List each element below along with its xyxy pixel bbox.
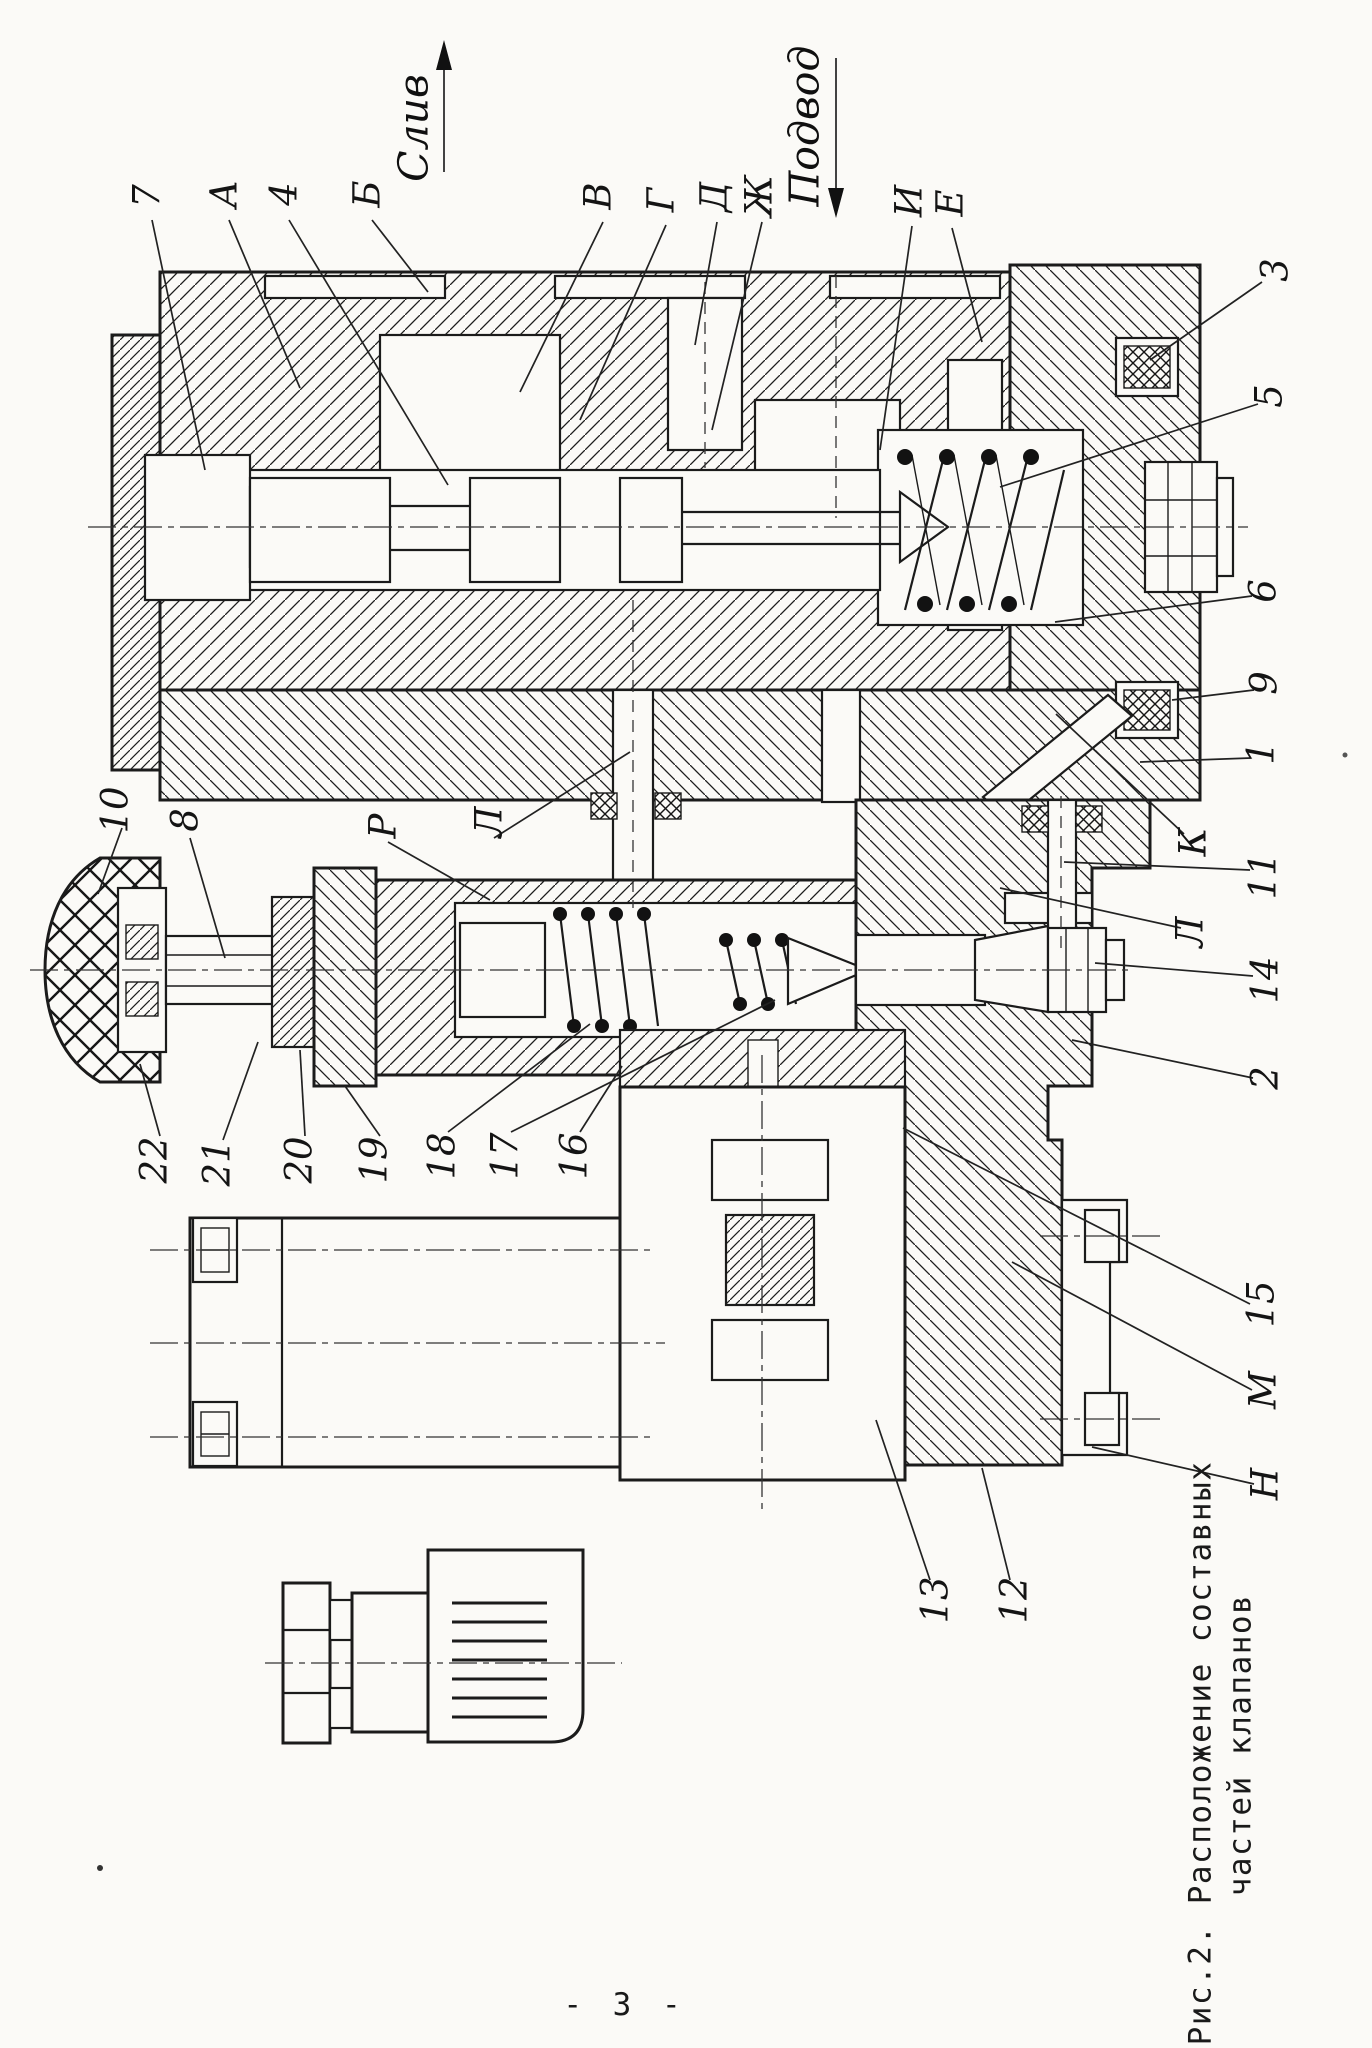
callout-8: 8 — [164, 808, 207, 832]
gland-flange — [314, 868, 376, 1086]
callout-d: Д — [693, 181, 736, 214]
callout-9: 9 — [1243, 671, 1286, 695]
handwheel-nut — [126, 982, 158, 1016]
page-number: - 3 - — [563, 1987, 686, 2023]
vertical-channel-center — [822, 690, 860, 802]
figure-caption-line2: частей клапанов — [1223, 1594, 1259, 1896]
callout-l-left: Л — [468, 805, 511, 839]
push-pin — [748, 1040, 778, 1087]
callout-15: 15 — [1240, 1280, 1283, 1327]
callout-11: 11 — [1242, 852, 1285, 899]
scan-artifact — [1343, 753, 1348, 758]
cavity-v — [380, 335, 560, 475]
callout-17: 17 — [484, 1132, 527, 1180]
channel-seal — [1076, 806, 1102, 832]
callout-22: 22 — [133, 1136, 176, 1184]
callout-b: Б — [346, 180, 389, 208]
callout-6: 6 — [1242, 579, 1285, 603]
callout-1: 1 — [1240, 741, 1283, 765]
callout-20: 20 — [278, 1136, 321, 1184]
solenoid-section — [190, 1030, 905, 1480]
armature-detail — [712, 1320, 828, 1380]
flow-supply-label: Подвод — [781, 46, 829, 208]
solenoid-terminal — [193, 1402, 237, 1466]
callout-19: 19 — [353, 1136, 396, 1183]
arrow-up-icon — [436, 40, 452, 70]
cable-connector — [283, 1550, 583, 1743]
callout-a: А — [203, 180, 246, 211]
callout-21: 21 — [196, 1139, 239, 1187]
callout-7: 7 — [126, 184, 169, 208]
connector-neck — [330, 1688, 352, 1728]
callout-2: 2 — [1244, 1066, 1287, 1091]
lock-nut — [272, 897, 314, 1047]
callout-3: 3 — [1254, 258, 1297, 282]
handwheel-nut — [126, 925, 158, 959]
callout-18: 18 — [421, 1132, 464, 1179]
connector-shell — [428, 1550, 583, 1742]
figure-caption-line1: Рис.2. Расположение составных — [1183, 1461, 1219, 2046]
callout-k: К — [1172, 826, 1215, 857]
scan-artifact — [97, 1865, 103, 1871]
callout-10: 10 — [94, 786, 137, 833]
port-boss-right — [830, 276, 1000, 298]
callout-l-right: Л — [1169, 915, 1212, 949]
callout-r: Р — [362, 812, 405, 839]
callout-v: В — [577, 182, 620, 210]
callout-n: Н — [1244, 1467, 1287, 1501]
callout-14: 14 — [1244, 956, 1287, 1003]
flow-drain: Слив — [390, 40, 453, 182]
flow-supply: Подвод — [781, 46, 845, 218]
callout-16: 16 — [553, 1132, 596, 1179]
connector-neck — [330, 1600, 352, 1640]
channel-seal — [655, 793, 681, 819]
pilot-seat — [975, 926, 1048, 1012]
armature-core — [726, 1215, 814, 1305]
valve-section-drawing: Слив Подвод — [0, 0, 1372, 2048]
channel-seal — [1022, 806, 1048, 832]
callout-5: 5 — [1248, 384, 1291, 408]
callout-m: М — [1242, 1370, 1285, 1410]
callout-12: 12 — [993, 1576, 1036, 1623]
callout-4: 4 — [263, 182, 306, 207]
channel-seal — [591, 793, 617, 819]
callout-g: Г — [640, 186, 683, 213]
armature-detail — [712, 1140, 828, 1200]
callout-zh: Ж — [738, 174, 781, 220]
arrow-down-icon — [828, 188, 844, 218]
flow-drain-label: Слив — [390, 74, 438, 182]
callout-13: 13 — [914, 1576, 957, 1623]
scanned-page: Слив Подвод — [0, 0, 1372, 2048]
port-boss-center — [555, 276, 745, 298]
callout-e: Е — [929, 189, 972, 217]
callout-i: И — [888, 184, 931, 218]
